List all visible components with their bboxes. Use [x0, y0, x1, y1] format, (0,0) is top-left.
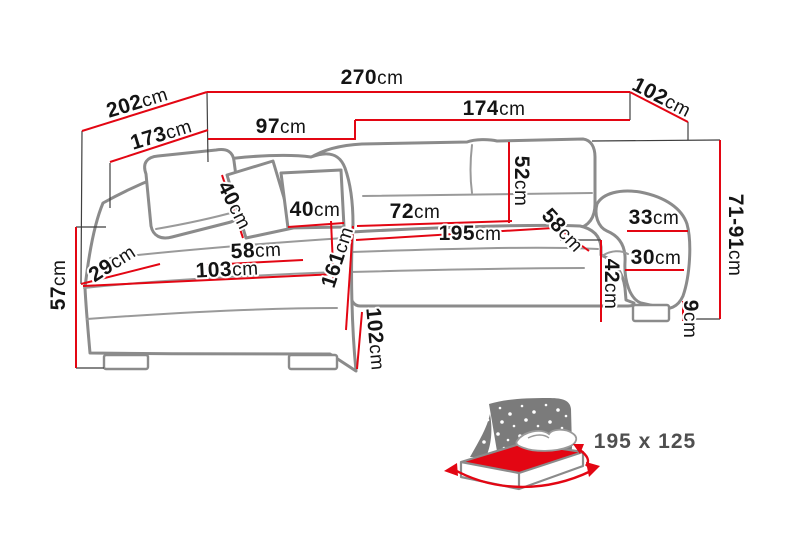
- dim-label-103cm: 103cm: [195, 256, 259, 282]
- dim-label-30cm: 30cm: [631, 246, 682, 269]
- dim-label-52cm: 52cm: [510, 156, 533, 207]
- sleeping-area-size-label: 195 x 125: [594, 430, 696, 453]
- sofa-dimension-diagram: 270cm 202cm 173cm 97cm 174cm 102cm 71-91…: [0, 0, 800, 533]
- dim-label-270cm: 270cm: [341, 66, 404, 89]
- diagram-svg: 270cm 202cm 173cm 97cm 174cm 102cm 71-91…: [0, 0, 800, 533]
- dim-label-9cm: 9cm: [679, 300, 702, 339]
- dim-label-57cm: 57cm: [47, 260, 70, 311]
- leg-chaise-right: [289, 355, 337, 369]
- dim-label-102cm-bottom: 102cm: [361, 307, 389, 372]
- dim-label-33cm: 33cm: [629, 206, 680, 229]
- dim-label-195cm: 195cm: [439, 222, 502, 245]
- dim-label-174cm: 174cm: [463, 97, 526, 120]
- dim-line-102-bottom: [357, 312, 362, 369]
- dim-label-40cm-front: 40cm: [290, 198, 341, 221]
- dim-label-97cm: 97cm: [256, 115, 307, 138]
- dim-label-71-91cm: 71-91cm: [724, 194, 747, 277]
- arrow-head-left: [444, 463, 458, 476]
- dim-label-42cm: 42cm: [600, 259, 623, 310]
- dim-label-72cm: 72cm: [390, 200, 441, 223]
- dim-label-202cm: 202cm: [104, 82, 171, 122]
- sleeping-function-icon: 195 x 125: [444, 398, 696, 489]
- leg-armrest: [633, 305, 669, 321]
- dim-label-173cm: 173cm: [128, 114, 195, 154]
- leg-chaise-left: [104, 355, 148, 369]
- dim-label-102cm-top: 102cm: [629, 73, 695, 122]
